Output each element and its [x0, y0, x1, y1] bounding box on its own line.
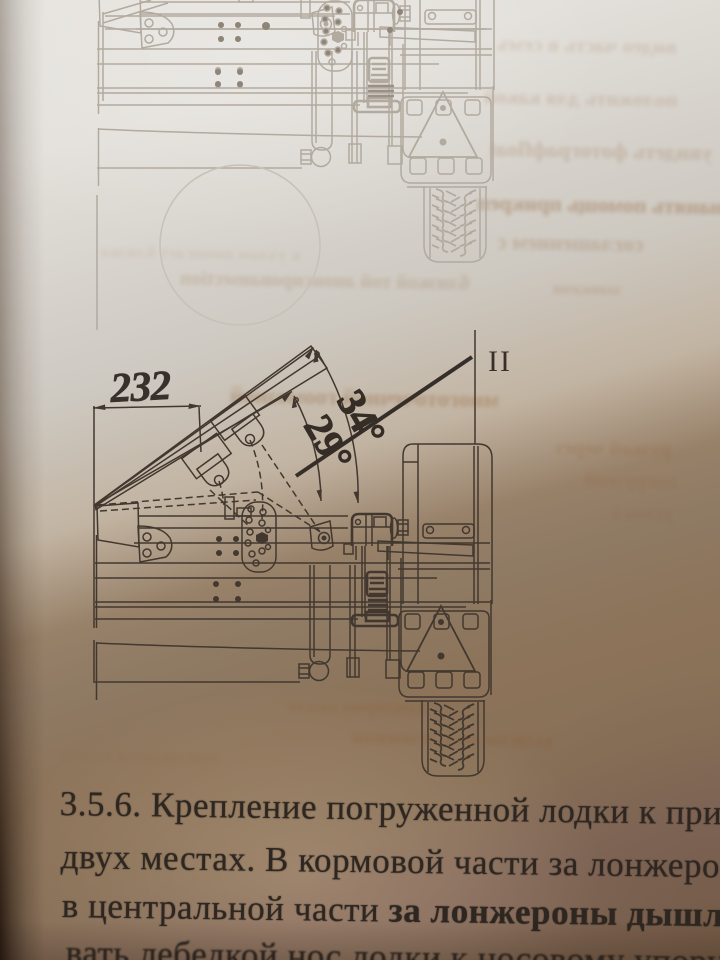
svg-text:232: 232 [108, 363, 172, 412]
svg-text:II: II [488, 345, 512, 378]
